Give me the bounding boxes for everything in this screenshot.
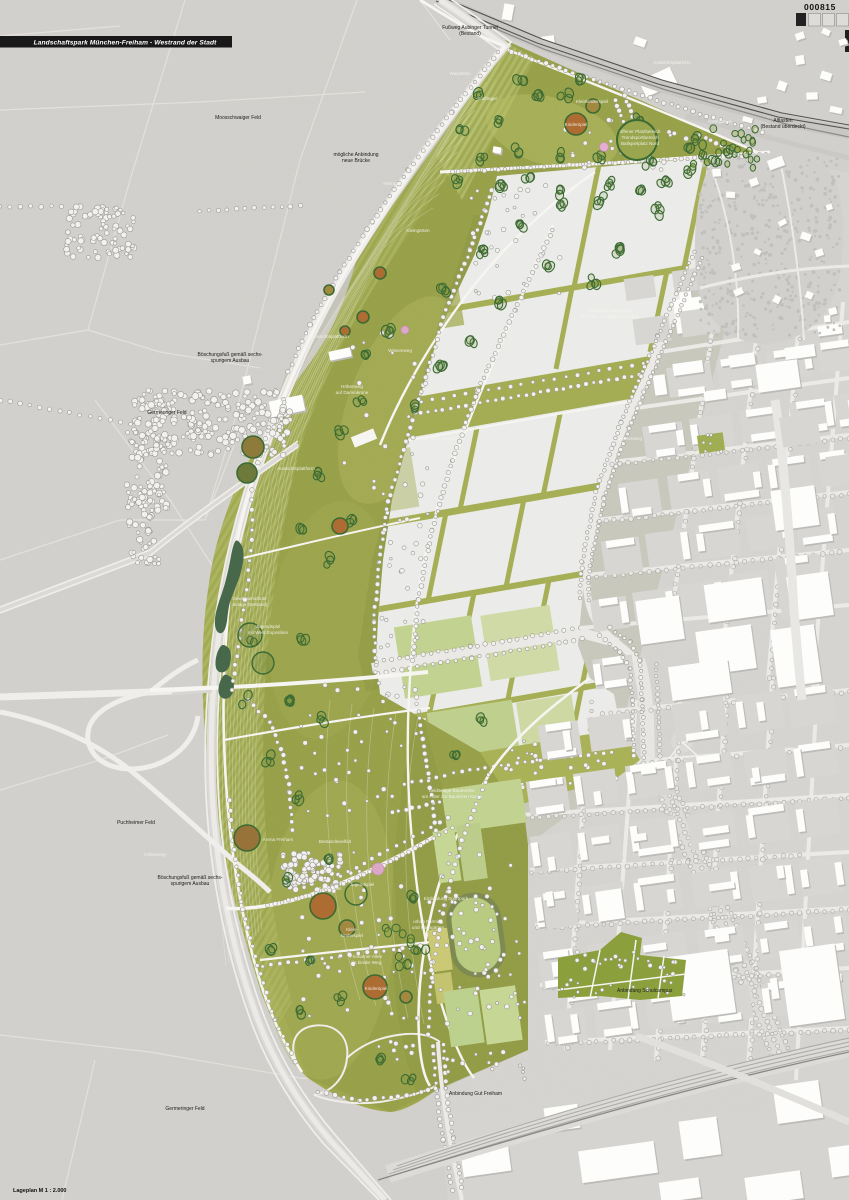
svg-text:Puchheimer Feld: Puchheimer Feld xyxy=(117,820,155,826)
svg-text:mit West Exposition: mit West Exposition xyxy=(248,630,289,635)
svg-text:(Bestand): (Bestand) xyxy=(459,31,481,37)
svg-text:Germeringer Feld: Germeringer Feld xyxy=(147,410,186,416)
svg-text:Trendsportbereich: Trendsportbereich xyxy=(621,135,659,140)
svg-text:Moosschwaiger Feld: Moosschwaiger Feld xyxy=(215,115,261,121)
svg-text:beidseitige Baumreihe: beidseitige Baumreihe xyxy=(587,308,633,313)
svg-text:Wiesenweg: Wiesenweg xyxy=(618,436,642,441)
svg-text:am Filter zur Baulichen Kante: am Filter zur Baulichen Kante xyxy=(422,794,483,799)
svg-text:Kleingärten: Kleingärten xyxy=(406,228,430,233)
svg-text:Waldstück: Waldstück xyxy=(449,71,471,76)
svg-text:als binder Weg: als binder Weg xyxy=(351,960,382,965)
svg-text:Höhenweg: Höhenweg xyxy=(341,384,363,389)
svg-text:Ballspielplatz Nord: Ballspielplatz Nord xyxy=(621,141,659,146)
svg-text:(Bestand überdeckt): (Bestand überdeckt) xyxy=(760,124,805,130)
svg-text:Jugendspiel: Jugendspiel xyxy=(256,624,281,629)
svg-text:Kleingärten: Kleingärten xyxy=(708,119,732,124)
svg-text:Dirt-Bike-Strecke: Dirt-Bike-Strecke xyxy=(423,436,458,441)
svg-text:neue Brücke: neue Brücke xyxy=(342,158,370,164)
svg-text:Aussichtsplattform: Aussichtsplattform xyxy=(277,466,315,471)
svg-text:000815: 000815 xyxy=(804,2,836,12)
svg-text:auf Dammkrone: auf Dammkrone xyxy=(336,390,369,395)
svg-text:urban Farming: urban Farming xyxy=(413,919,443,924)
svg-text:Klein-: Klein- xyxy=(346,927,358,932)
svg-text:Freihamer Allee: Freihamer Allee xyxy=(350,954,383,959)
svg-text:Einbindung Sportpark: Einbindung Sportpark xyxy=(424,896,469,901)
svg-text:und Kleingärten: und Kleingärten xyxy=(412,925,445,930)
svg-text:Kinderspiel: Kinderspiel xyxy=(365,986,388,991)
svg-text:Landschaftspark München-Freiha: Landschaftspark München-Freiham - Westra… xyxy=(34,40,217,47)
svg-text:kinderspiel: kinderspiel xyxy=(341,933,363,938)
svg-text:Anbindung Schulcampus: Anbindung Schulcampus xyxy=(617,988,673,994)
svg-text:Kinderspiel: Kinderspiel xyxy=(565,122,588,127)
svg-text:Germeringer Feld: Germeringer Feld xyxy=(165,1106,204,1112)
svg-text:spurigem Ausbau: spurigem Ausbau xyxy=(211,358,250,364)
svg-text:spurigem Ausbau: spurigem Ausbau xyxy=(171,881,210,887)
svg-text:Jugendspiel: Jugendspiel xyxy=(350,882,375,887)
svg-text:Kleingärten: Kleingärten xyxy=(383,181,407,186)
svg-text:Arena Freiham: Arena Freiham xyxy=(263,837,294,842)
svg-text:Anbindung Gut Freiham: Anbindung Gut Freiham xyxy=(449,1091,502,1097)
svg-text:Kinderspiel: Kinderspiel xyxy=(319,886,342,891)
svg-text:als Filter zur baulichen Kante: als Filter zur baulichen Kante xyxy=(580,314,640,319)
svg-text:Höhenweg: Höhenweg xyxy=(144,852,166,857)
svg-text:Gewässerschutz-: Gewässerschutz- xyxy=(232,596,268,601)
svg-text:offener Platzbereich: offener Platzbereich xyxy=(620,129,661,134)
svg-text:Kleinkinderspiel: Kleinkinderspiel xyxy=(576,99,608,104)
svg-text:Wiesenweg: Wiesenweg xyxy=(388,348,412,353)
svg-text:anlage (Bestand): anlage (Bestand) xyxy=(233,602,268,607)
svg-text:Aussichtsplattform: Aussichtsplattform xyxy=(653,60,691,65)
svg-text:Südhügel: Südhügel xyxy=(477,96,496,101)
svg-text:Lageplan M 1 : 2.000: Lageplan M 1 : 2.000 xyxy=(13,1188,67,1194)
svg-text:beidseitige Baumreihe: beidseitige Baumreihe xyxy=(429,788,475,793)
svg-text:Bestandsvielfalt: Bestandsvielfalt xyxy=(319,839,352,844)
svg-text:Aussichtsplattform: Aussichtsplattform xyxy=(311,334,349,339)
